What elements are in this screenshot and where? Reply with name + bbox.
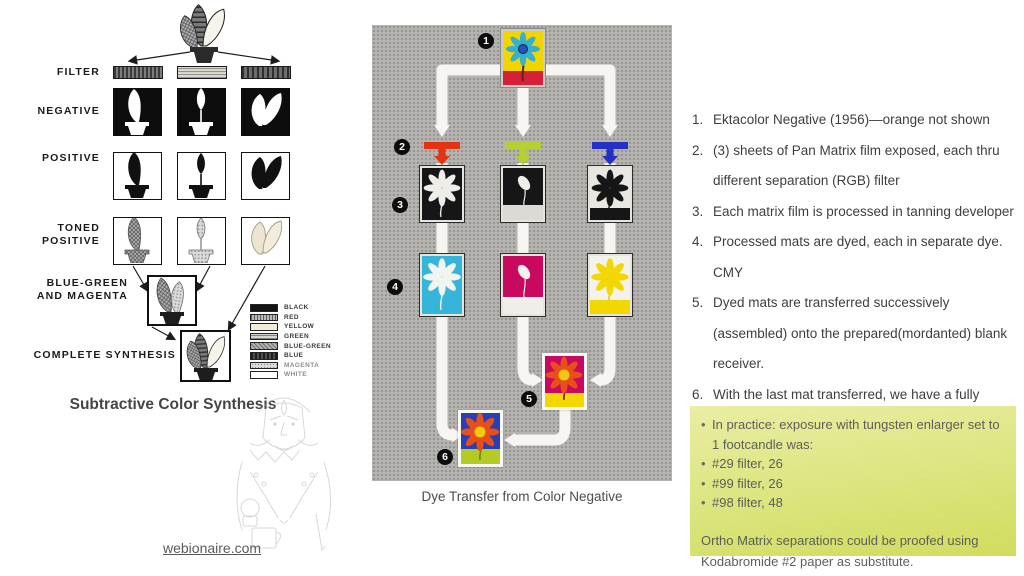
legend-row-black: BLACK xyxy=(250,303,331,313)
slide: FILTER NEGATIVE POSITIVE TONED POSITIVE … xyxy=(0,0,1024,576)
matrix-film-red xyxy=(419,165,465,223)
dyed-mat-magenta xyxy=(500,253,546,317)
legend-swatch-red xyxy=(250,314,278,322)
legend-swatch-blue xyxy=(250,352,278,360)
toned-positive-cell-3 xyxy=(241,217,290,265)
dye-transfer-panel: 1 2 3 4 5 6 xyxy=(372,25,672,481)
list-item: 2.(3) sheets of Pan Matrix film exposed,… xyxy=(692,136,1018,197)
step-badge-2: 2 xyxy=(394,139,410,155)
legend-swatch-green xyxy=(250,333,278,341)
legend-label: RED xyxy=(284,314,299,321)
legend-row-red: RED xyxy=(250,313,331,323)
filter-bar-green xyxy=(177,66,227,79)
toned-positive-cell-2 xyxy=(177,217,226,265)
legend-swatch-white xyxy=(250,371,278,379)
assembled-print-final xyxy=(458,410,503,467)
legend-swatch-magenta xyxy=(250,362,278,370)
legend-row-yellow: YELLOW xyxy=(250,322,331,332)
list-item: 4.Processed mats are dyed, each in separ… xyxy=(692,227,1018,288)
step-badge-4: 4 xyxy=(387,279,403,295)
note-bullet-text: In practice: exposure with tungsten enla… xyxy=(712,415,1005,454)
label-complete-synthesis: COMPLETE SYNTHESIS xyxy=(16,349,176,362)
list-item-text: Ektacolor Negative (1956)—orange not sho… xyxy=(713,105,1018,136)
legend-swatch-yellow xyxy=(250,323,278,331)
toned-positive-cell-1 xyxy=(113,217,162,265)
note-bullet: •In practice: exposure with tungsten enl… xyxy=(701,415,1005,454)
legend-row-blue-green: BLUE-GREEN xyxy=(250,341,331,351)
legend-label: BLUE xyxy=(284,352,303,359)
dyed-mat-cyan xyxy=(419,253,465,317)
step-badge-6: 6 xyxy=(437,449,453,465)
bullet-icon: • xyxy=(701,454,712,474)
bullet-icon: • xyxy=(701,493,712,513)
legend-label: WHITE xyxy=(284,371,307,378)
legend-row-white: WHITE xyxy=(250,370,331,380)
negative-cell-1 xyxy=(113,88,162,136)
color-negative-thumb xyxy=(500,28,546,88)
positive-cell-2 xyxy=(177,152,226,200)
legend-swatch-black xyxy=(250,304,278,312)
color-legend: BLACK RED YELLOW GREEN BLUE-GREEN BLUE M… xyxy=(250,303,331,380)
positive-cell-1 xyxy=(113,152,162,200)
legend-swatch-blue-green xyxy=(250,342,278,350)
list-item-number: 3. xyxy=(692,197,713,228)
watermark-link[interactable]: webionaire.com xyxy=(163,540,261,556)
list-item-text: (3) sheets of Pan Matrix film exposed, e… xyxy=(713,136,1018,197)
bullet-icon: • xyxy=(701,474,712,494)
complete-synthesis-cell xyxy=(180,330,231,382)
step-badge-3: 3 xyxy=(392,197,408,213)
note-bullet: •#98 filter, 48 xyxy=(701,493,1005,513)
plant-original-icon xyxy=(173,2,235,64)
label-positive: POSITIVE xyxy=(10,152,100,165)
label-blue-green-magenta: BLUE-GREEN AND MAGENTA xyxy=(18,277,128,303)
matrix-film-blue xyxy=(587,165,633,223)
legend-label: GREEN xyxy=(284,333,309,340)
filter-bar-blue xyxy=(241,66,291,79)
list-item: 3.Each matrix film is processed in tanni… xyxy=(692,197,1018,228)
practice-note: •In practice: exposure with tungsten enl… xyxy=(690,406,1016,556)
list-item-number: 2. xyxy=(692,136,713,197)
negative-cell-3 xyxy=(241,88,290,136)
negative-cell-2 xyxy=(177,88,226,136)
list-item-text: Dyed mats are transferred successively (… xyxy=(713,288,1018,380)
note-bullet: •#29 filter, 26 xyxy=(701,454,1005,474)
note-bullet: •#99 filter, 26 xyxy=(701,474,1005,494)
bullet-icon: • xyxy=(701,415,712,454)
green-filter-icon xyxy=(503,137,543,165)
assembled-print-partial xyxy=(542,353,587,410)
legend-row-green: GREEN xyxy=(250,332,331,342)
label-toned-positive: TONED POSITIVE xyxy=(10,222,100,248)
step-badge-1: 1 xyxy=(478,33,494,49)
note-bullet-text: #98 filter, 48 xyxy=(712,493,783,513)
list-item-number: 4. xyxy=(692,227,713,288)
step-badge-5: 5 xyxy=(521,391,537,407)
red-filter-icon xyxy=(422,137,462,165)
middle-diagram-caption: Dye Transfer from Color Negative xyxy=(372,489,672,504)
legend-row-blue: BLUE xyxy=(250,351,331,361)
list-item-number: 1. xyxy=(692,105,713,136)
list-item: 5.Dyed mats are transferred successively… xyxy=(692,288,1018,380)
dyed-mat-yellow xyxy=(587,253,633,317)
blue-filter-icon xyxy=(590,137,630,165)
legend-row-magenta: MAGENTA xyxy=(250,361,331,371)
list-item: 1.Ektacolor Negative (1956)—orange not s… xyxy=(692,105,1018,136)
note-footer: Ortho Matrix separations could be proofe… xyxy=(701,530,1005,572)
blue-green-magenta-cell xyxy=(147,275,197,326)
legend-label: MAGENTA xyxy=(284,362,319,369)
process-steps-list: 1.Ektacolor Negative (1956)—orange not s… xyxy=(692,105,1018,441)
legend-label: BLUE-GREEN xyxy=(284,343,331,350)
matrix-film-green xyxy=(500,165,546,223)
legend-label: YELLOW xyxy=(284,323,314,330)
list-item-number: 5. xyxy=(692,288,713,380)
filter-bar-red xyxy=(113,66,163,79)
positive-cell-3 xyxy=(241,152,290,200)
label-filter: FILTER xyxy=(10,66,100,79)
list-item-text: Processed mats are dyed, each in separat… xyxy=(713,227,1018,288)
note-bullet-text: #29 filter, 26 xyxy=(712,454,783,474)
label-negative: NEGATIVE xyxy=(10,105,100,118)
legend-label: BLACK xyxy=(284,304,309,311)
list-item-text: Each matrix film is processed in tanning… xyxy=(713,197,1018,228)
note-bullet-text: #99 filter, 26 xyxy=(712,474,783,494)
